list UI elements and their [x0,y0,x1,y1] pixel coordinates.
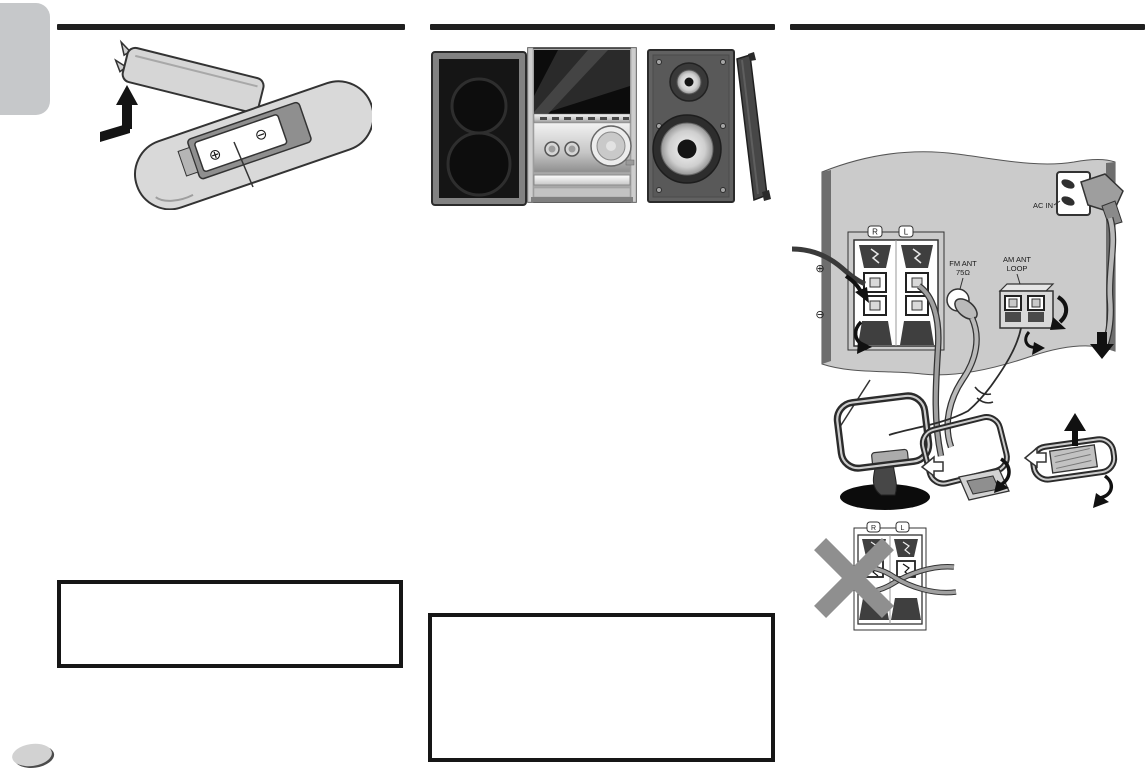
tweeter [670,63,708,101]
section-rule-right [790,24,1145,30]
right-speaker [648,50,734,202]
speaker-terminal-block: R L ⊕ ⊖ [792,226,944,456]
warning-label-l: L [901,525,905,532]
volume-dial [591,126,631,166]
page-number-badge [11,741,54,768]
terminal-minus-symbol: ⊖ [815,309,824,321]
am-ant-label-line1: AM ANT [1003,255,1031,264]
terminal-label-r: R [872,228,878,237]
note-box-left [57,580,403,668]
note-box-middle [428,613,775,762]
small-knob-1 [545,142,559,156]
section-rule-middle [430,24,775,30]
main-unit [528,48,636,202]
stereo-system-illustration [430,44,775,209]
woofer [653,115,721,183]
terminal-plus-symbol: ⊕ [815,263,824,275]
page-tab [0,3,50,115]
warning-label-r: R [871,525,876,532]
manual-page: ⊕ ⊖ [0,0,1145,772]
speaker-grille-leaning [737,52,771,201]
fold-arrow-icon [1093,476,1111,508]
remote-battery-illustration: ⊕ ⊖ [92,35,372,210]
left-speaker [432,52,526,205]
am-loop-antenna-assembly [835,394,1116,510]
terminal-label-l: L [904,228,909,237]
disc-slot [534,175,630,185]
incorrect-connection-warning: R L [814,522,956,630]
am-ant-label-line2: LOOP [1007,264,1028,273]
fm-ant-label-line1: FM ANT [949,259,977,268]
small-knob-2 [565,142,579,156]
open-direction-arrow-icon [100,85,138,142]
rear-panel-diagram: R L ⊕ ⊖ [792,146,1145,666]
ac-in-label: AC IN [1033,201,1053,210]
fm-ant-label-line2: 75Ω [956,268,970,277]
step-arrow-left-icon-2 [1025,448,1046,467]
section-rule-left [57,24,405,30]
